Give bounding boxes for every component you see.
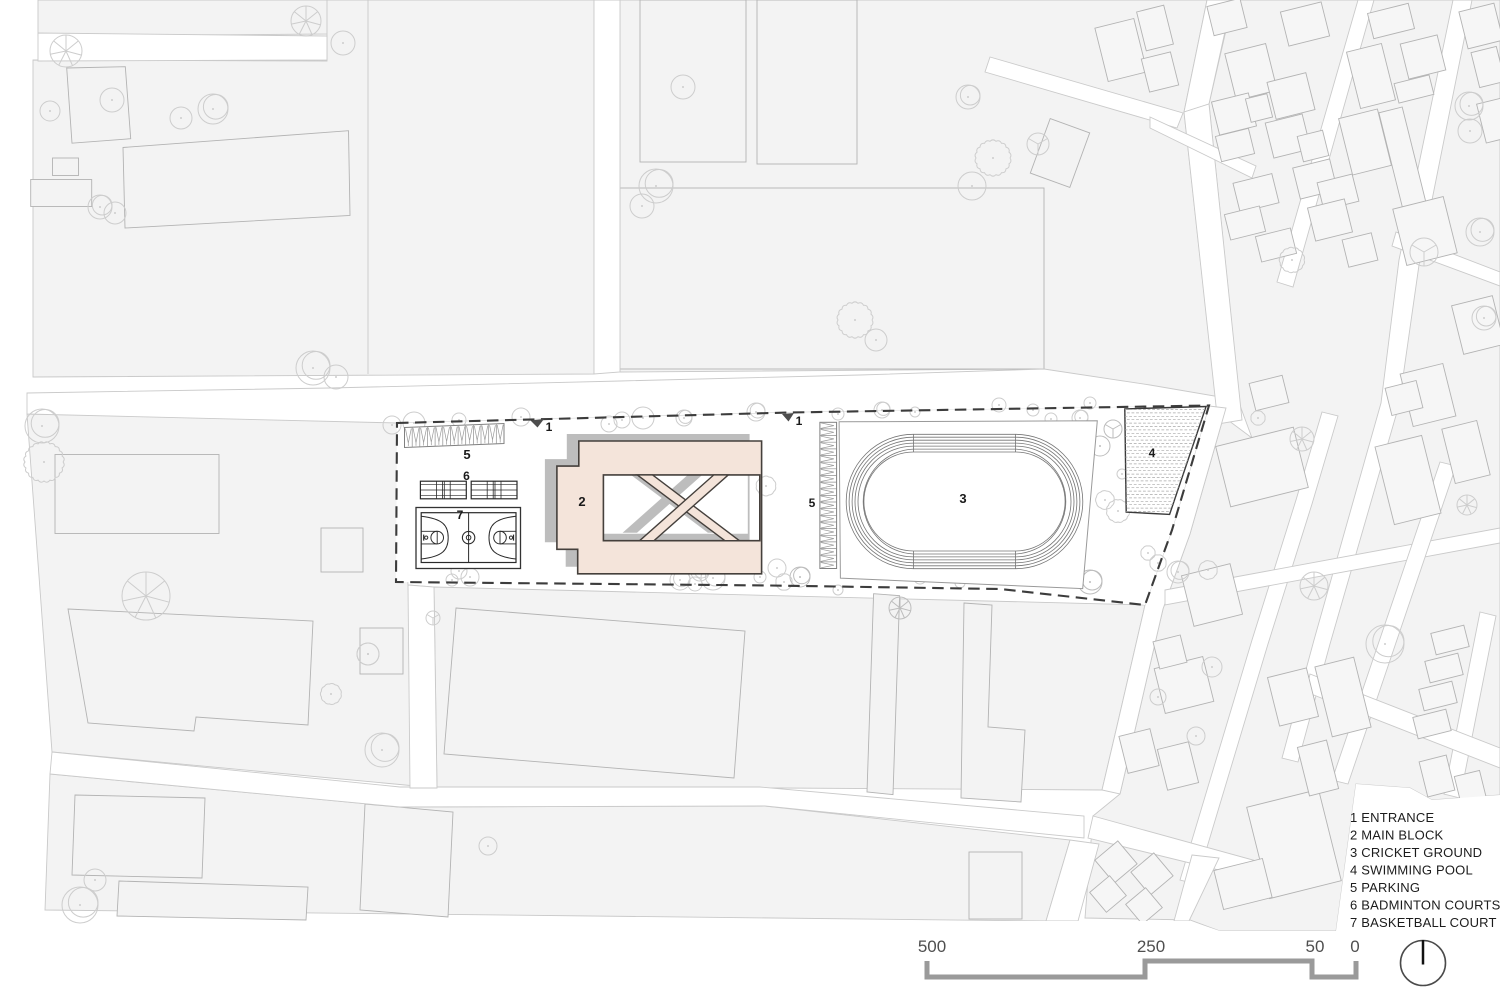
svg-text:2 MAIN BLOCK: 2 MAIN BLOCK	[1350, 828, 1444, 843]
svg-text:7 BASKETBALL COURT: 7 BASKETBALL COURT	[1350, 915, 1497, 930]
svg-text:0: 0	[1350, 937, 1359, 956]
svg-text:2: 2	[578, 494, 585, 509]
svg-text:6: 6	[463, 469, 470, 483]
svg-text:500: 500	[918, 937, 946, 956]
svg-text:1 ENTRANCE: 1 ENTRANCE	[1350, 810, 1434, 825]
svg-text:250: 250	[1137, 937, 1165, 956]
svg-text:50: 50	[1306, 937, 1325, 956]
svg-text:5: 5	[463, 447, 470, 462]
svg-text:4: 4	[1149, 446, 1156, 460]
svg-text:1: 1	[546, 420, 553, 434]
svg-text:7: 7	[457, 508, 464, 522]
svg-text:5 PARKING: 5 PARKING	[1350, 880, 1420, 895]
svg-text:4 SWIMMING POOL: 4 SWIMMING POOL	[1350, 863, 1473, 878]
svg-text:5: 5	[809, 496, 816, 510]
svg-text:6 BADMINTON COURTS: 6 BADMINTON COURTS	[1350, 898, 1500, 913]
svg-text:3: 3	[959, 491, 966, 506]
svg-text:1: 1	[796, 414, 803, 428]
svg-text:3 CRICKET GROUND: 3 CRICKET GROUND	[1350, 845, 1482, 860]
